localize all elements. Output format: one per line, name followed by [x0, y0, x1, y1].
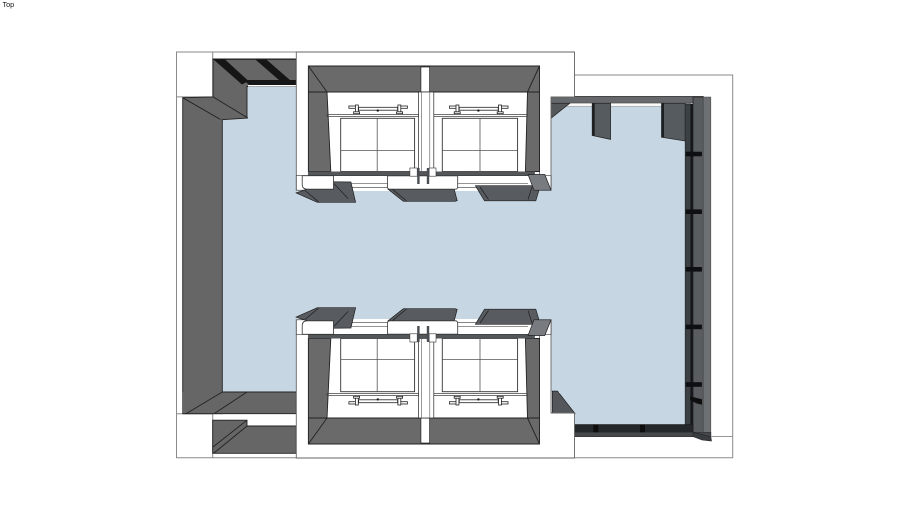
svg-text:Top: Top — [3, 0, 15, 9]
